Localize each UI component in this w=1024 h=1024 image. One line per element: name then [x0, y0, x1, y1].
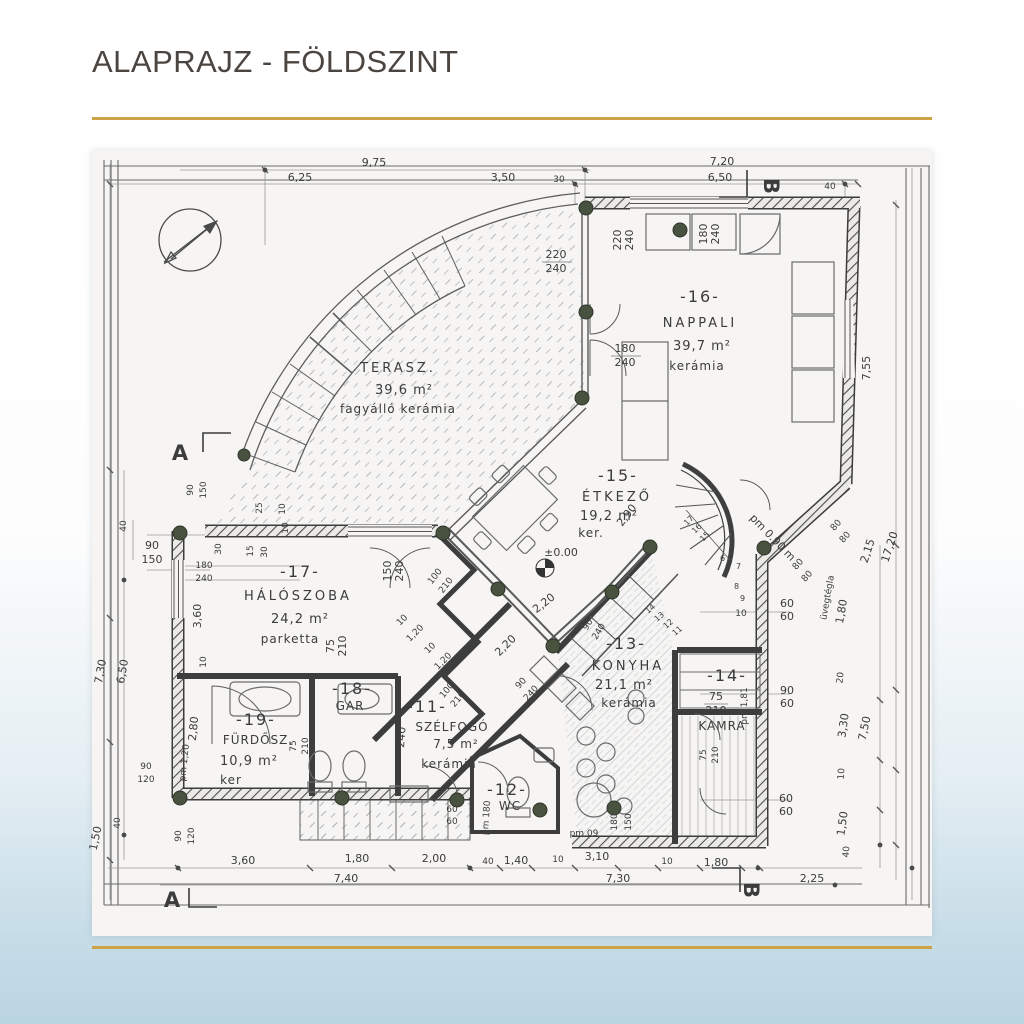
- room-number: -14-: [707, 666, 747, 685]
- dim-label: 40: [119, 520, 129, 532]
- livingroom-furniture: [622, 214, 834, 460]
- dim-label: 75: [289, 740, 299, 751]
- dim-label: 180: [615, 342, 636, 355]
- level-pm181: pm 1,81: [740, 687, 750, 724]
- dim-label: 40: [824, 182, 836, 192]
- level-pm09: pm 09: [570, 829, 599, 839]
- dim-label: 10: [281, 522, 291, 534]
- room-floor: ker: [220, 773, 242, 787]
- room-name: GAR: [336, 699, 365, 713]
- room-number: -16-: [680, 287, 720, 306]
- dim-label: 10: [395, 613, 410, 628]
- dim-label: 210: [336, 636, 349, 657]
- stair-number: 9: [740, 594, 745, 603]
- dim-label: 2,20: [530, 591, 557, 616]
- dim-label: 9,75: [362, 156, 387, 169]
- room-number: -12-: [487, 780, 527, 799]
- room-area: 39,7 m²: [673, 339, 731, 354]
- dim-label: 180: [610, 813, 620, 830]
- section-marker-a-bottom: A: [164, 888, 181, 912]
- dim-label: 220: [546, 248, 567, 261]
- dim-label: 6,50: [114, 658, 131, 684]
- dim-label: 240: [709, 224, 722, 245]
- dim-label: 7,30: [606, 872, 631, 885]
- level-zero: ±0.00: [544, 546, 578, 559]
- stair-number: 7: [736, 562, 741, 571]
- gold-divider-bottom: [92, 946, 932, 949]
- dim-label: 80: [838, 530, 853, 545]
- dim-label: 3,60: [231, 854, 256, 867]
- room-name: HÁLÓSZOBA: [244, 588, 352, 604]
- dim-label: 210: [301, 737, 311, 754]
- dim-label: 3,30: [835, 712, 851, 738]
- room-area: 21,1 m²: [595, 678, 653, 693]
- dim-label: 40: [842, 846, 853, 858]
- dim-label: 7,20: [710, 155, 735, 168]
- dim-label: 150: [142, 553, 163, 566]
- dim-label: 120: [187, 827, 197, 844]
- dim-label: 90: [514, 676, 529, 691]
- dim-label: 30: [260, 546, 270, 558]
- dims-top: 9,75 6,25 3,50 30 7,20 6,50 40: [288, 155, 836, 192]
- dim-label: 3,10: [585, 850, 610, 863]
- section-marker-b-bottom: B: [739, 882, 763, 898]
- dim-label: 180: [195, 561, 212, 571]
- room-label-nappali: -16- NAPPALI 39,7 m² kerámia: [663, 287, 737, 373]
- room-area: 10,9 m²: [220, 754, 278, 769]
- room-label-furdoszoba: -19- FÜRDŐSZ. 10,9 m² ker: [220, 710, 293, 787]
- dim-label: 6,50: [708, 171, 733, 184]
- dim-label: 10: [661, 857, 673, 867]
- dim-label: 60: [446, 805, 458, 815]
- dim-label: 90: [780, 684, 794, 697]
- room-number: -11-: [407, 697, 447, 716]
- room-label-etkezo: -15- ÉTKEZŐ 19,2 m² ker. 2,90: [578, 466, 652, 540]
- dim-label: 240: [394, 726, 408, 748]
- dim-label: 90: [186, 484, 196, 496]
- dim-label: 30: [214, 543, 224, 555]
- room-name: KAMRA: [698, 719, 745, 733]
- section-marker-a-top: A: [172, 441, 189, 465]
- dim-label: 240: [195, 574, 212, 584]
- dim-label: 240: [546, 262, 567, 275]
- room-number: -15-: [598, 466, 638, 485]
- dim-label: 75: [709, 690, 723, 703]
- room-label-wc: -12- WC: [487, 780, 527, 813]
- dim-label: 3,50: [491, 171, 516, 184]
- room-number: -13-: [606, 634, 646, 653]
- dim-label: 7,30: [92, 658, 109, 684]
- room-name: FÜRDŐSZ.: [223, 731, 293, 747]
- dim-label: 25: [255, 502, 265, 513]
- room-area: 7,5 m²: [433, 737, 478, 751]
- dim-label: 2,00: [422, 852, 447, 865]
- dim-label: 7,40: [334, 872, 359, 885]
- dim-label: 90: [174, 830, 184, 842]
- room-number: -17-: [280, 562, 320, 581]
- dim-label: 40: [482, 857, 494, 867]
- room-floor: kerámia: [601, 696, 657, 710]
- room-name: KONYHA: [592, 659, 664, 674]
- dim-label: 30: [553, 175, 565, 185]
- room-floor: fagyálló kerámia: [340, 402, 456, 416]
- dim-label: 60: [780, 697, 794, 710]
- dim-label: 10: [278, 503, 288, 515]
- dim-label: 60: [780, 597, 794, 610]
- dim-label: 60: [446, 817, 458, 827]
- dim-label: 75: [699, 749, 709, 760]
- dim-label: 1,80: [704, 856, 729, 869]
- dim-label: 7,55: [860, 356, 873, 381]
- dim-label: 150: [624, 813, 634, 830]
- dim-label: 120: [137, 775, 154, 785]
- dim-label: 3,60: [191, 604, 204, 629]
- room-label-haloszoba: -17- HÁLÓSZOBA 24,2 m² parketta: [244, 562, 352, 646]
- room-number: -19-: [236, 710, 276, 729]
- dim-label: 90: [145, 539, 159, 552]
- dim-label: 210: [706, 704, 727, 717]
- room-name: WC: [499, 799, 521, 813]
- dim-label: 60: [779, 805, 793, 818]
- stair-number: 6: [720, 554, 725, 563]
- room-area: 39,6 m²: [375, 383, 433, 398]
- dim-label: 2,80: [186, 716, 201, 742]
- dim-label: 240: [623, 230, 636, 251]
- pantry-floor-lines: [682, 716, 754, 840]
- section-marker-b-top: B: [759, 178, 783, 194]
- room-floor: ker.: [578, 526, 604, 540]
- room-floor: kerámia: [421, 757, 477, 771]
- dim-label: 10: [552, 855, 564, 865]
- dim-label: 1,80: [345, 852, 370, 865]
- room-name: TERASZ.: [359, 361, 436, 376]
- room-number: -18-: [332, 679, 372, 698]
- dim-label: 15: [246, 545, 256, 556]
- dims-right: 7,55 17,20 2,15 80 80 80 80 1,80 20 90 6…: [779, 356, 901, 858]
- room-floor: parketta: [261, 632, 320, 646]
- room-floor: kerámia: [669, 359, 725, 373]
- dim-label: 10: [735, 609, 747, 619]
- dim-label: 90: [140, 762, 152, 772]
- room-area: 24,2 m²: [271, 612, 329, 627]
- room-name: SZÉLFOGÓ: [415, 719, 488, 734]
- slide-page: ALAPRAJZ - FÖLDSZINT: [0, 0, 1024, 1024]
- dim-label: 2,15: [858, 537, 878, 564]
- dim-label: 60: [779, 792, 793, 805]
- stair-number: 8: [734, 582, 739, 591]
- dim-label: 2,25: [800, 872, 825, 885]
- dim-label: 60: [780, 610, 794, 623]
- dim-label: 210: [711, 746, 721, 763]
- dim-label: 40: [113, 817, 123, 829]
- dim-label: 1,40: [504, 854, 529, 867]
- north-arrow-icon: [159, 209, 221, 271]
- dim-label: 1,20: [405, 623, 426, 644]
- dim-label: 150: [199, 481, 209, 498]
- dim-label: 10: [199, 656, 209, 668]
- floorplan-drawing: TERASZ. 39,6 m² fagyálló kerámia -16- NA…: [0, 0, 1024, 1024]
- diagonal-dims: 2,20 2,20 10 1,20 10 1,20: [395, 591, 557, 673]
- dim-label: 1,80: [833, 598, 850, 624]
- dim-label: 80: [829, 518, 844, 533]
- dim-label: 20: [835, 671, 846, 684]
- dim-label: 240: [615, 356, 636, 369]
- dim-label: 240: [393, 561, 406, 582]
- dim-label: 10: [423, 641, 438, 656]
- dim-label: 10: [837, 768, 848, 780]
- dim-label: 1,50: [834, 810, 850, 836]
- dim-label: 7,50: [856, 715, 874, 742]
- room-label-gar: -18- GAR: [332, 679, 372, 713]
- room-name: ÉTKEZŐ: [582, 489, 652, 505]
- room-name: NAPPALI: [663, 316, 737, 331]
- dim-label: 6,25: [288, 171, 313, 184]
- dim-label: 2,20: [492, 632, 519, 659]
- dim-label: 1,50: [87, 825, 105, 852]
- dim-label: 80: [800, 569, 815, 584]
